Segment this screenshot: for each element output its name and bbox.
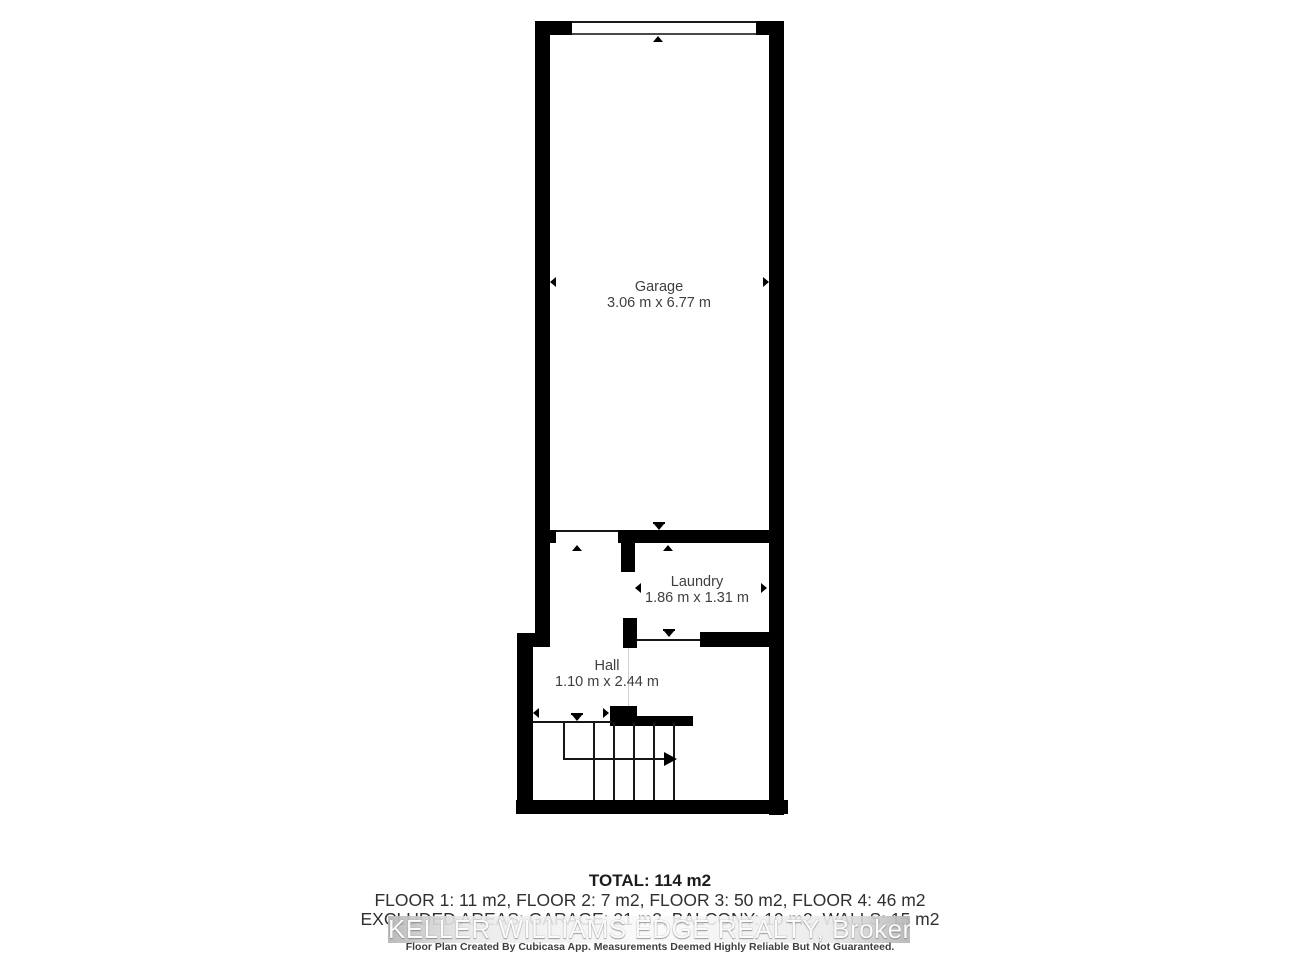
garage-width-marker-right-icon xyxy=(763,277,769,287)
hall-width-marker-left-icon xyxy=(533,708,539,718)
stair-step-line xyxy=(633,722,635,800)
laundry-divider-wall-lower xyxy=(623,618,637,648)
hall-height-marker-down-icon xyxy=(572,715,582,721)
laundry-room-label: Laundry 1.86 m x 1.31 m xyxy=(597,574,797,606)
brokerage-watermark: KELLER WILLIAMS EDGE REALTY, Brokerage xyxy=(388,916,910,943)
garage-door-opening xyxy=(572,21,756,35)
disclaimer-text: Floor Plan Created By Cubicasa App. Meas… xyxy=(0,941,1300,953)
stairs-side-wall xyxy=(637,716,693,726)
hall-height-marker-up-icon xyxy=(572,545,582,551)
stair-arrow-shaft-horizontal xyxy=(563,758,666,760)
right-wall xyxy=(769,21,784,815)
garage-room-dimensions: 3.06 m x 6.77 m xyxy=(559,295,759,311)
garage-passage-opening-line xyxy=(556,530,618,532)
laundry-room-name: Laundry xyxy=(597,574,797,590)
stair-step-line xyxy=(653,722,655,800)
floor-plan-page: Garage 3.06 m x 6.77 m Laundry 1.86 m x … xyxy=(0,0,1300,975)
hall-width-marker-right-icon xyxy=(603,708,609,718)
stair-step-line xyxy=(613,722,615,800)
garage-height-marker-down-icon xyxy=(654,524,664,530)
laundry-bottom-wall xyxy=(700,632,784,647)
laundry-height-marker-down-icon xyxy=(664,631,674,637)
garage-room-label: Garage 3.06 m x 6.77 m xyxy=(559,279,759,311)
laundry-room-dimensions: 1.86 m x 1.31 m xyxy=(597,590,797,606)
garage-bottom-wall-stub xyxy=(535,530,556,543)
floor-breakdown-text: FLOOR 1: 11 m2, FLOOR 2: 7 m2, FLOOR 3: … xyxy=(0,890,1300,911)
laundry-opening-line xyxy=(637,639,700,641)
laundry-height-marker-up-icon xyxy=(663,545,673,551)
stair-arrow-shaft-vertical xyxy=(563,722,565,760)
garage-room-name: Garage xyxy=(559,279,759,295)
hall-room-dimensions: 1.10 m x 2.44 m xyxy=(507,674,707,690)
laundry-divider-wall-upper xyxy=(621,543,635,572)
garage-bottom-wall xyxy=(618,530,784,543)
stair-step-line xyxy=(593,722,595,800)
stairs-top-line xyxy=(532,721,612,723)
garage-width-marker-left-icon xyxy=(550,277,556,287)
total-area-text: TOTAL: 114 m2 xyxy=(0,871,1300,891)
hall-room-name: Hall xyxy=(507,658,707,674)
garage-door-marker-icon xyxy=(653,36,663,42)
bottom-wall xyxy=(516,800,788,814)
hall-room-label: Hall 1.10 m x 2.44 m xyxy=(507,658,707,690)
stair-direction-arrow-icon xyxy=(664,752,677,766)
